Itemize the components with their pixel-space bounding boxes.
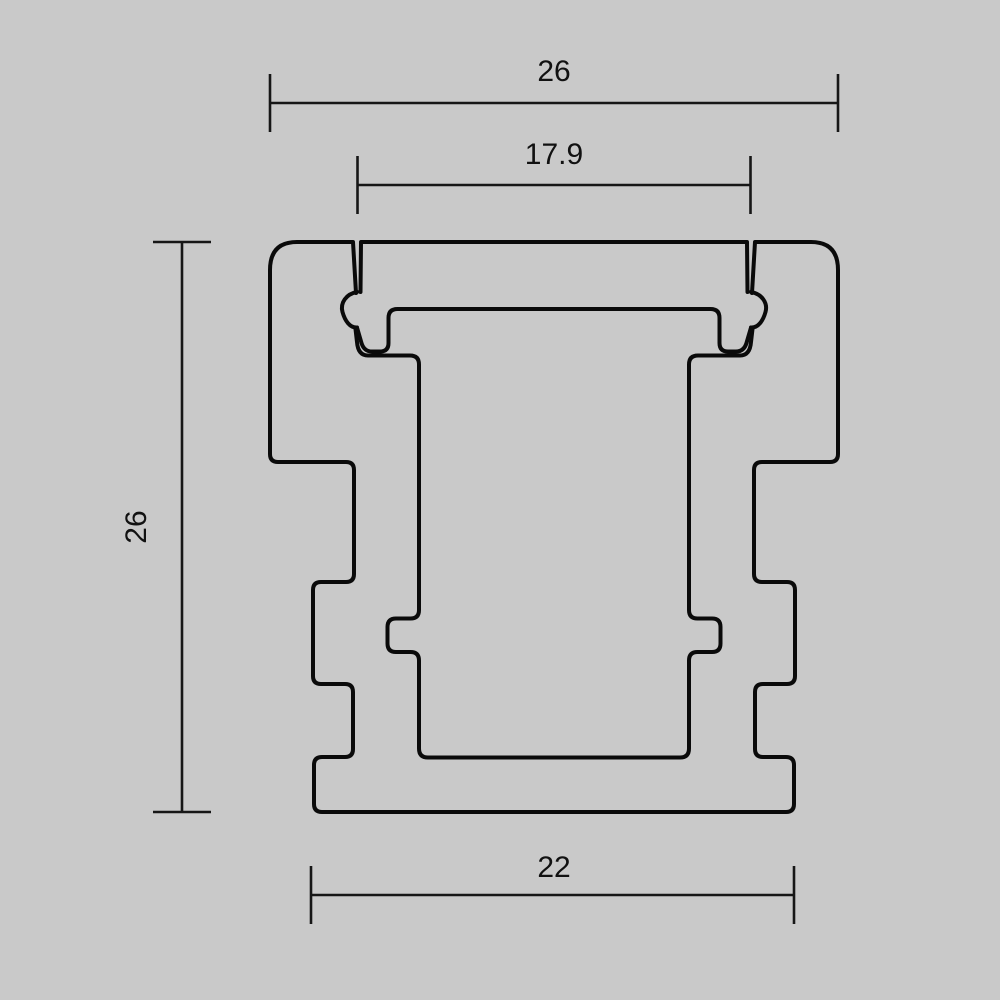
led-channel-contour	[357, 309, 751, 352]
cover-slot-left	[361, 242, 362, 292]
dimension-value-opening-width: 17.9	[525, 138, 583, 171]
profile-outline	[270, 242, 838, 812]
drawing-canvas: 26 17.9 26 22	[0, 0, 1000, 1000]
dimension-opening-width: 17.9	[358, 138, 751, 214]
dimension-value-base-width: 22	[537, 851, 570, 884]
dimension-height: 26	[120, 242, 211, 812]
dimension-value-height: 26	[120, 510, 153, 543]
clip-bead-right	[751, 292, 766, 328]
cover-slot-right	[747, 242, 748, 292]
dimension-base-width: 22	[311, 851, 794, 924]
dimension-value-outer-width: 26	[537, 55, 570, 88]
profile-cross-section-drawing: 26 17.9 26 22	[0, 0, 1000, 1000]
clip-bead-left	[342, 292, 357, 328]
dimension-outer-width: 26	[270, 55, 838, 132]
lower-cavity-contour	[356, 329, 753, 758]
